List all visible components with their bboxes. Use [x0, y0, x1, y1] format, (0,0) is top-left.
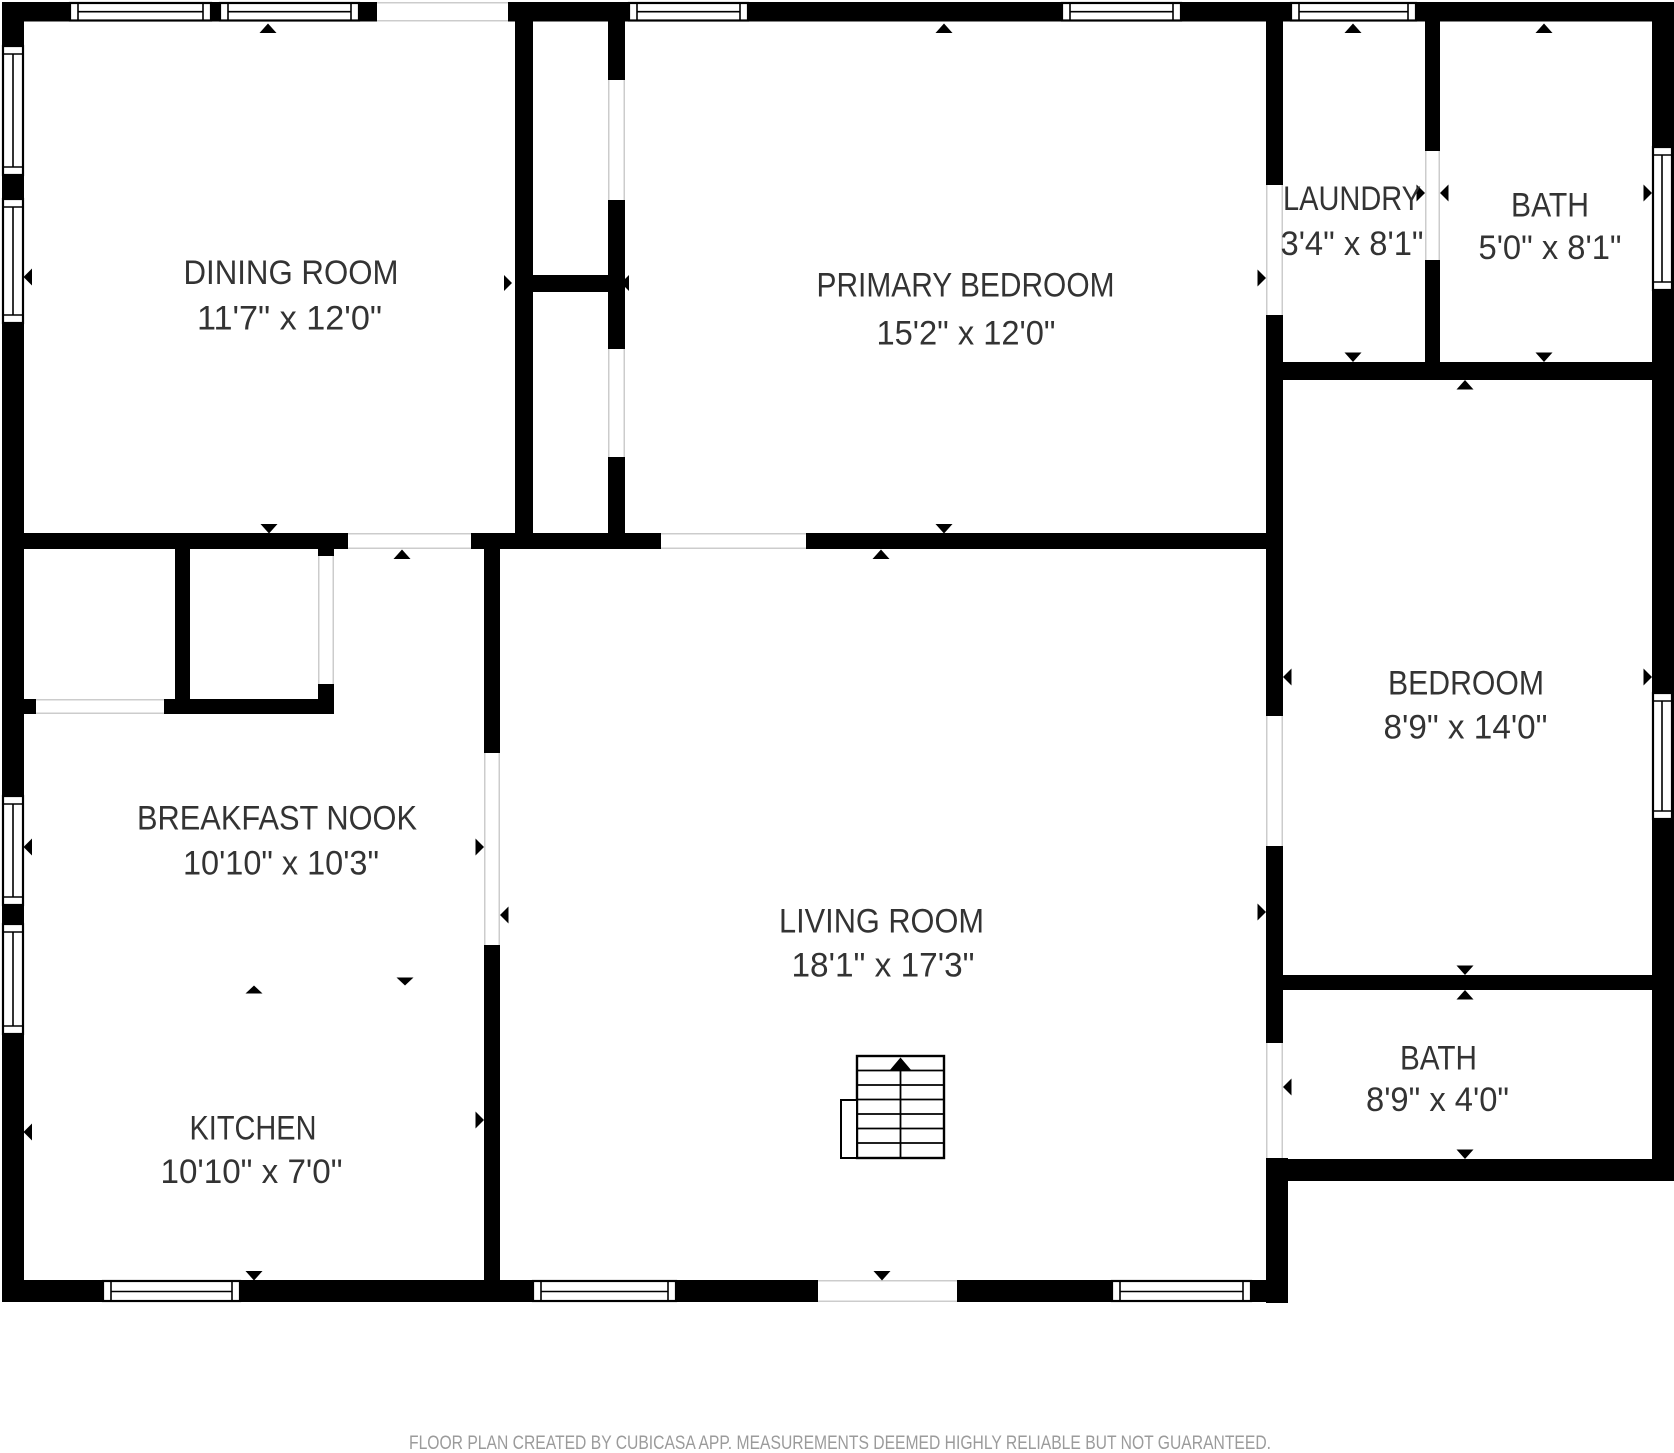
svg-text:10'10" x 10'3": 10'10" x 10'3" [183, 845, 379, 883]
svg-text:8'9" x 4'0": 8'9" x 4'0" [1366, 1081, 1509, 1119]
svg-text:10'10" x 7'0": 10'10" x 7'0" [161, 1153, 343, 1191]
svg-text:BATH: BATH [1511, 187, 1589, 225]
svg-text:PRIMARY BEDROOM: PRIMARY BEDROOM [817, 267, 1115, 305]
svg-text:8'9" x 14'0": 8'9" x 14'0" [1384, 709, 1548, 747]
svg-text:DINING ROOM: DINING ROOM [184, 254, 399, 292]
svg-text:LAUNDRY: LAUNDRY [1283, 180, 1421, 218]
svg-text:18'1" x 17'3": 18'1" x 17'3" [792, 947, 975, 985]
svg-text:5'0" x 8'1": 5'0" x 8'1" [1479, 229, 1622, 267]
svg-text:11'7" x 12'0": 11'7" x 12'0" [197, 300, 382, 338]
svg-text:3'4" x 8'1": 3'4" x 8'1" [1281, 225, 1424, 263]
svg-text:BEDROOM: BEDROOM [1388, 665, 1544, 703]
svg-text:BATH: BATH [1400, 1040, 1477, 1078]
svg-text:LIVING ROOM: LIVING ROOM [779, 903, 984, 941]
svg-text:BREAKFAST NOOK: BREAKFAST NOOK [137, 800, 417, 838]
svg-text:15'2" x 12'0": 15'2" x 12'0" [877, 315, 1056, 353]
svg-text:KITCHEN: KITCHEN [190, 1110, 317, 1148]
svg-text:FLOOR PLAN CREATED BY CUBICASA: FLOOR PLAN CREATED BY CUBICASA APP. MEAS… [409, 1433, 1271, 1453]
